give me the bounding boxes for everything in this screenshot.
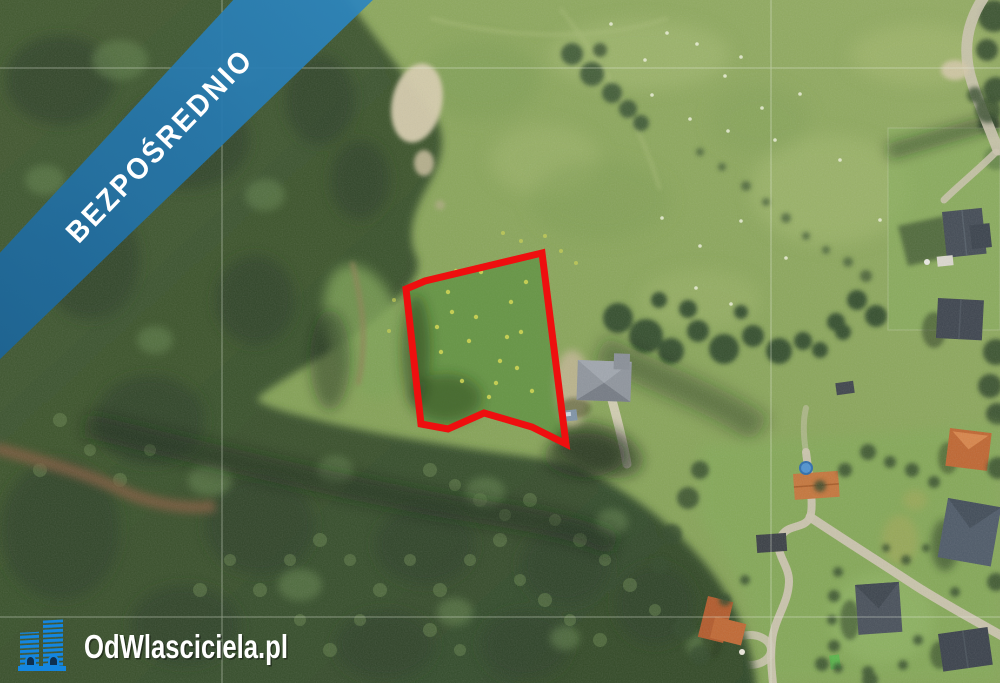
door-right <box>49 656 58 666</box>
aerial-photo: BEZPOŚREDNIO OdWlasciciela.pl OdWlascici… <box>0 0 1000 683</box>
logo: OdWlasciciela.pl OdWlasciciela.pl <box>18 620 290 671</box>
logo-text: OdWlasciciela.pl <box>84 628 288 665</box>
door-left <box>26 656 35 666</box>
listing-photo: BEZPOŚREDNIO OdWlasciciela.pl OdWlascici… <box>0 0 1000 683</box>
